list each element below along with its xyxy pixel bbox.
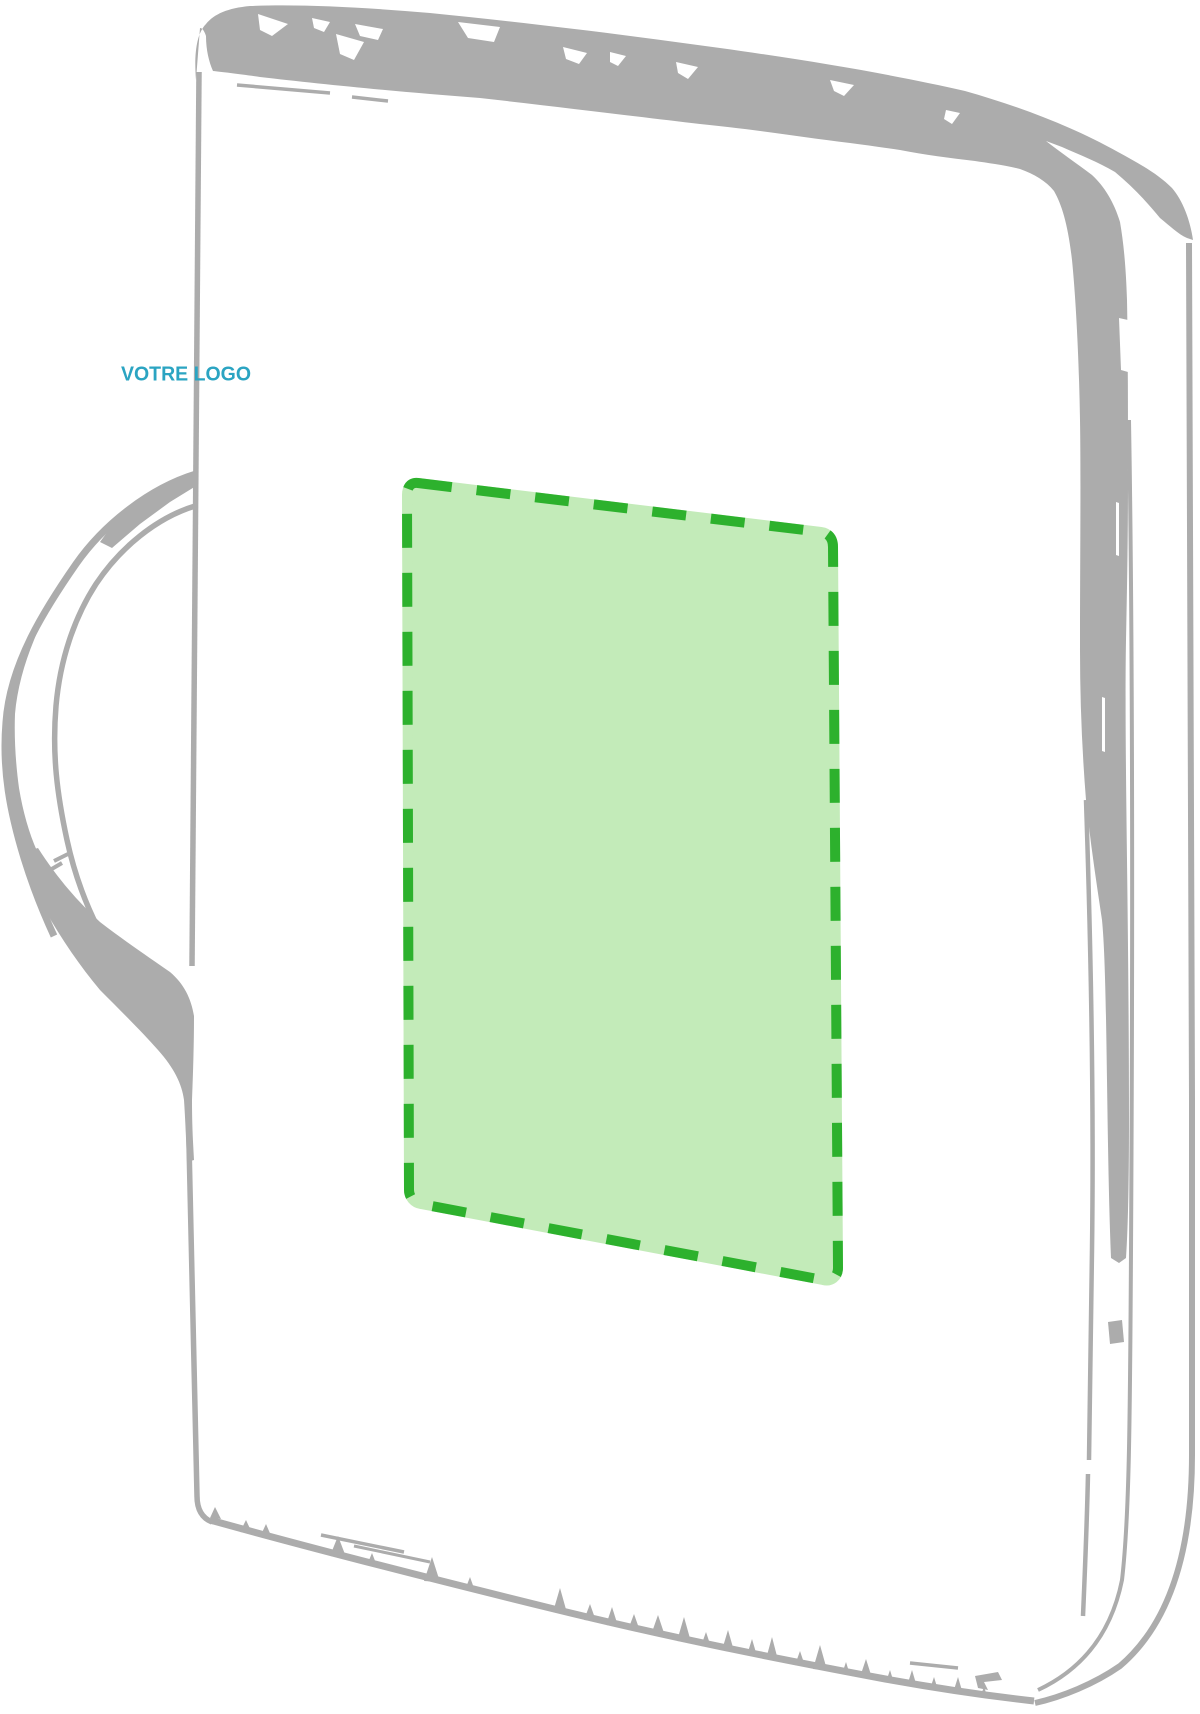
svg-text:VOTRE LOGO: VOTRE LOGO xyxy=(121,363,251,386)
